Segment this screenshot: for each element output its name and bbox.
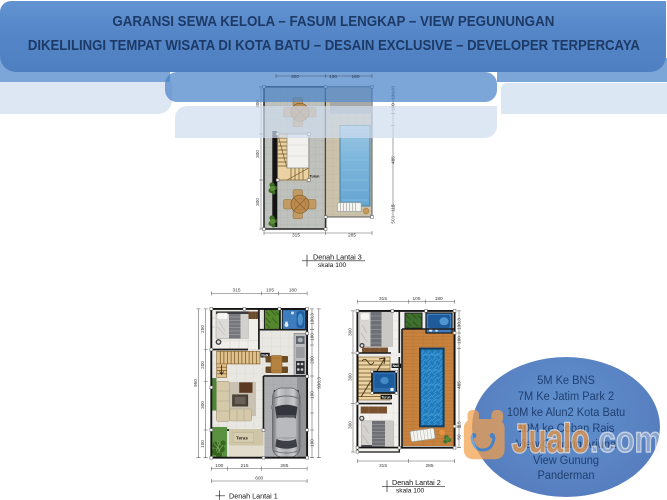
svg-text:105: 105 [266,288,274,294]
svg-text:115: 115 [391,204,396,212]
svg-text:105: 105 [412,296,420,302]
svg-text:100: 100 [310,391,315,399]
svg-text:skala 100: skala 100 [396,487,425,494]
svg-text:Turun: Turun [381,395,390,399]
svg-text:180: 180 [351,74,359,80]
svg-text:300: 300 [255,150,260,158]
svg-text:50: 50 [391,218,396,224]
svg-text:315: 315 [379,296,387,302]
svg-text:200: 200 [200,361,205,369]
svg-text:Denah Lantai 2: Denah Lantai 2 [392,478,441,487]
svg-text:100: 100 [457,336,462,344]
svg-text:315: 315 [292,233,300,239]
svg-text:300: 300 [255,198,260,206]
svg-text:skala 100: skala 100 [318,262,347,269]
svg-text:Teras: Teras [236,436,248,441]
svg-text:485: 485 [457,381,462,389]
svg-text:485: 485 [391,156,396,164]
svg-text:250: 250 [200,325,205,333]
svg-text:300: 300 [291,74,299,80]
svg-text:100: 100 [310,439,315,447]
svg-text:Jualo: Jualo [512,417,589,461]
svg-text:180: 180 [289,288,297,294]
svg-text:100: 100 [200,440,205,448]
svg-text:.com: .com [590,419,662,460]
svg-text:300: 300 [200,401,205,409]
svg-text:300: 300 [348,328,353,336]
svg-text:130,3: 130,3 [457,318,462,330]
svg-text:100: 100 [215,463,223,469]
svg-text:100: 100 [310,333,315,341]
svg-text:200: 200 [310,356,315,364]
svg-text:950: 950 [193,379,198,387]
svg-text:315: 315 [379,463,387,469]
svg-text:315: 315 [232,288,240,294]
svg-text:300: 300 [348,421,353,429]
svg-text:130: 130 [329,74,337,80]
svg-text:285: 285 [425,463,433,469]
svg-text:300: 300 [348,373,353,381]
svg-text:930,3: 930,3 [316,377,321,389]
svg-text:Turun: Turun [310,175,320,179]
svg-text:180: 180 [435,296,443,302]
svg-text:285: 285 [348,233,356,239]
svg-text:Denah Lantai 1: Denah Lantai 1 [229,492,278,500]
svg-text:600: 600 [255,475,263,481]
svg-text:285: 285 [280,463,288,469]
svg-text:130,3: 130,3 [310,313,315,325]
svg-text:215: 215 [240,463,248,469]
svg-text:Denah Lantai 3: Denah Lantai 3 [313,253,362,262]
